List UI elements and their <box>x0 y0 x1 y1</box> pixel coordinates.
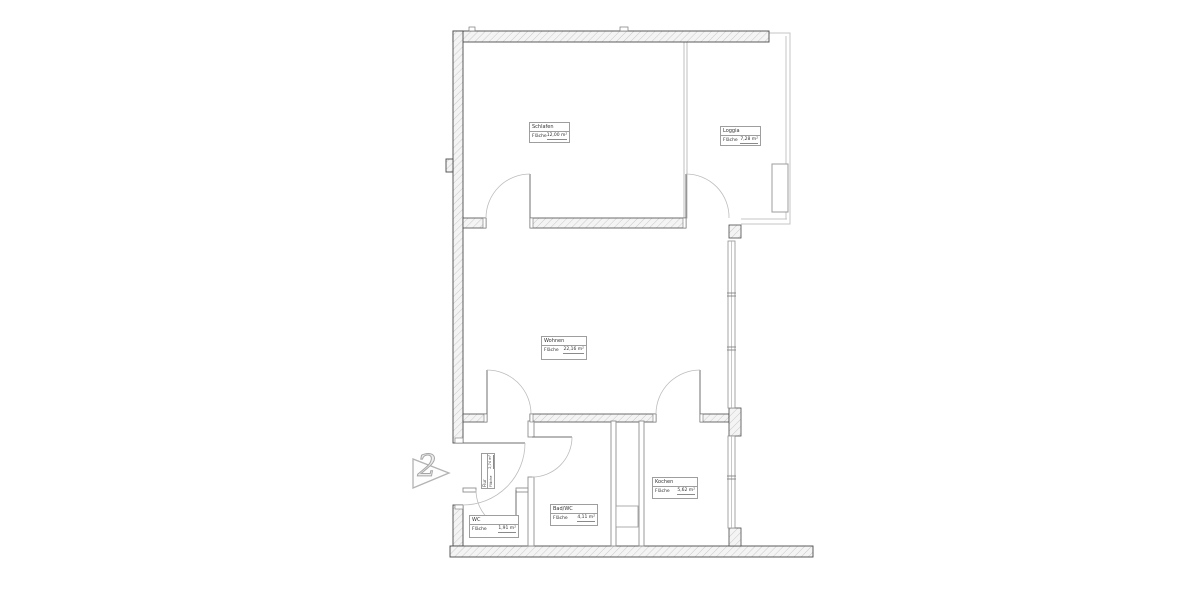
room-name: Wohnen <box>542 337 586 346</box>
floorplan-page: 2 Schlafen Fläche12,00 m² Loggia Fläche7… <box>0 0 1200 600</box>
area-key: Fläche <box>655 489 670 495</box>
room-label-loggia: Loggia Fläche7,28 m² <box>720 126 761 146</box>
area-key: Fläche <box>553 516 568 522</box>
area-key: Fläche <box>532 134 547 140</box>
room-label-schlafen: Schlafen Fläche12,00 m² <box>529 122 570 143</box>
top-wall-ticks <box>469 27 628 31</box>
room-name: Loggia <box>721 127 760 136</box>
area-value: 12,00 m² <box>547 133 568 140</box>
room-label-badwc: Bad/WC Fläche4,11 m² <box>550 504 598 526</box>
room-label-wc: WC Fläche1,91 m² <box>469 515 519 538</box>
room-name: Schlafen <box>530 123 569 132</box>
loggia-pillar <box>772 164 788 212</box>
area-value: 1,91 m² <box>498 526 516 533</box>
area-value: 4,11 m² <box>577 515 595 522</box>
room-label-kochen: Kochen Fläche5,62 m² <box>652 477 698 499</box>
room-name: WC <box>470 516 518 525</box>
exterior-walls <box>446 31 813 557</box>
room-name: Bad/WC <box>551 505 597 514</box>
area-value: 5,62 m² <box>677 488 695 495</box>
interior-walls <box>463 218 741 546</box>
room-label-flur: Flur Fläche2,74 m² <box>481 453 495 489</box>
area-key: Fläche <box>723 138 738 144</box>
plumbing-shaft <box>616 506 638 527</box>
area-key: Fläche <box>544 348 559 354</box>
unit-number-label: 2 <box>408 450 446 484</box>
room-name: Kochen <box>653 478 697 487</box>
floorplan-drawing <box>0 0 1200 600</box>
area-key: Fläche <box>489 476 494 487</box>
area-key: Fläche <box>472 527 487 533</box>
room-label-wohnen: Wohnen Fläche22,16 m² <box>541 336 587 360</box>
area-value: 2,74 m² <box>488 455 494 469</box>
area-value: 7,28 m² <box>740 137 758 144</box>
area-value: 22,16 m² <box>563 347 584 354</box>
